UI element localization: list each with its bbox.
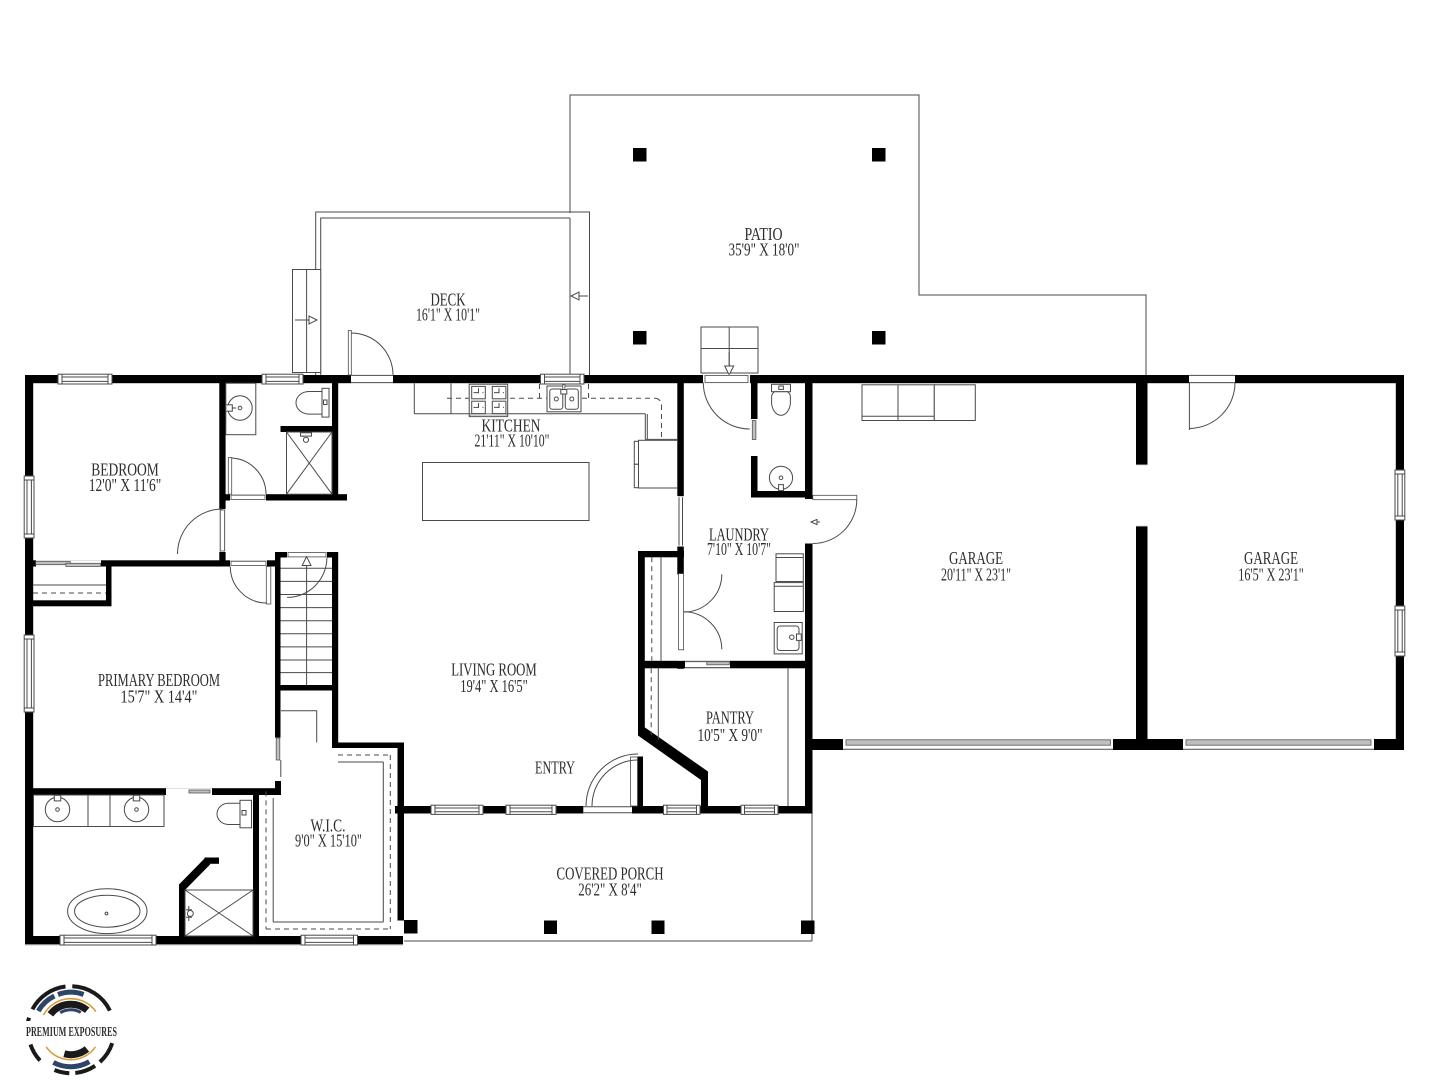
svg-text:16'5" X 23'1": 16'5" X 23'1" xyxy=(1238,565,1304,585)
svg-text:16'1" X 10'1": 16'1" X 10'1" xyxy=(416,305,480,325)
svg-text:20'11" X 23'1": 20'11" X 23'1" xyxy=(941,565,1011,585)
svg-text:26'2" X 8'4": 26'2" X 8'4" xyxy=(578,880,642,900)
svg-text:7'10" X 10'7": 7'10" X 10'7" xyxy=(707,539,771,559)
svg-text:PREMIUM EXPOSURES: PREMIUM EXPOSURES xyxy=(26,1024,117,1040)
svg-text:15'7" X 14'4": 15'7" X 14'4" xyxy=(121,687,198,707)
svg-text:ENTRY: ENTRY xyxy=(535,758,575,778)
svg-text:21'11" X 10'10": 21'11" X 10'10" xyxy=(475,431,550,451)
svg-text:9'0" X 15'10": 9'0" X 15'10" xyxy=(295,831,362,851)
svg-text:10'5" X 9'0": 10'5" X 9'0" xyxy=(698,725,763,745)
svg-text:35'9" X 18'0": 35'9" X 18'0" xyxy=(729,240,800,260)
svg-text:12'0" X 11'6": 12'0" X 11'6" xyxy=(89,475,162,495)
svg-text:19'4" X 16'5": 19'4" X 16'5" xyxy=(460,676,528,696)
